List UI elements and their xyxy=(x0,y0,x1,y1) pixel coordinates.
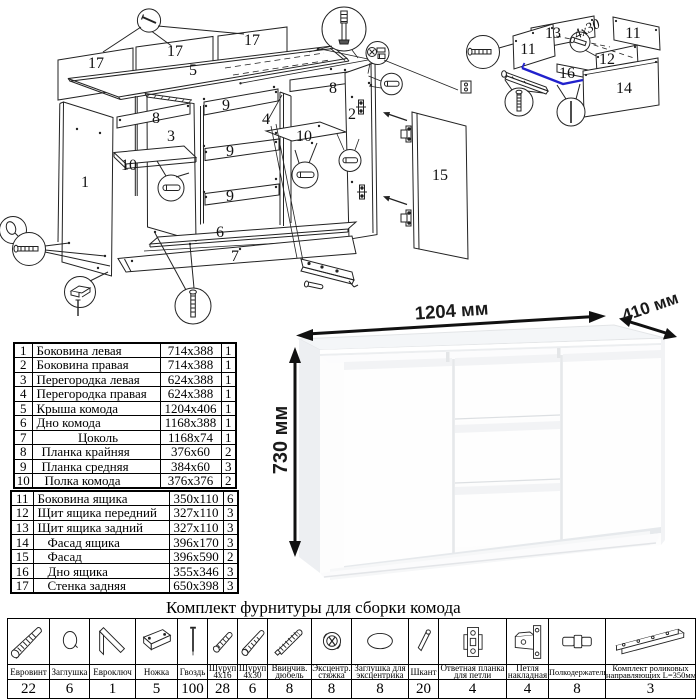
svg-text:1204 мм: 1204 мм xyxy=(414,297,489,323)
svg-text:730 мм: 730 мм xyxy=(270,406,292,475)
svg-text:5: 5 xyxy=(189,62,197,79)
svg-text:13: 13 xyxy=(545,25,561,42)
svg-text:7: 7 xyxy=(231,248,239,265)
svg-text:2: 2 xyxy=(348,106,356,123)
svg-text:4: 4 xyxy=(262,111,270,128)
svg-text:9: 9 xyxy=(226,143,234,160)
svg-text:15: 15 xyxy=(432,167,448,184)
svg-text:8: 8 xyxy=(152,110,160,127)
svg-text:10: 10 xyxy=(121,157,137,174)
svg-text:16: 16 xyxy=(559,65,575,82)
svg-text:10: 10 xyxy=(296,128,312,145)
svg-text:9: 9 xyxy=(222,97,230,114)
svg-text:17: 17 xyxy=(167,43,183,60)
svg-text:17: 17 xyxy=(244,32,260,49)
svg-text:11: 11 xyxy=(520,41,535,58)
svg-text:11: 11 xyxy=(625,25,640,42)
svg-text:9: 9 xyxy=(226,188,234,205)
svg-text:1: 1 xyxy=(81,174,89,191)
svg-text:12: 12 xyxy=(599,51,615,68)
svg-text:17: 17 xyxy=(88,55,104,72)
svg-text:410 мм: 410 мм xyxy=(620,288,681,325)
svg-text:3: 3 xyxy=(167,128,175,145)
svg-text:6: 6 xyxy=(216,224,224,241)
svg-text:8: 8 xyxy=(329,80,337,97)
svg-text:14: 14 xyxy=(616,80,632,97)
